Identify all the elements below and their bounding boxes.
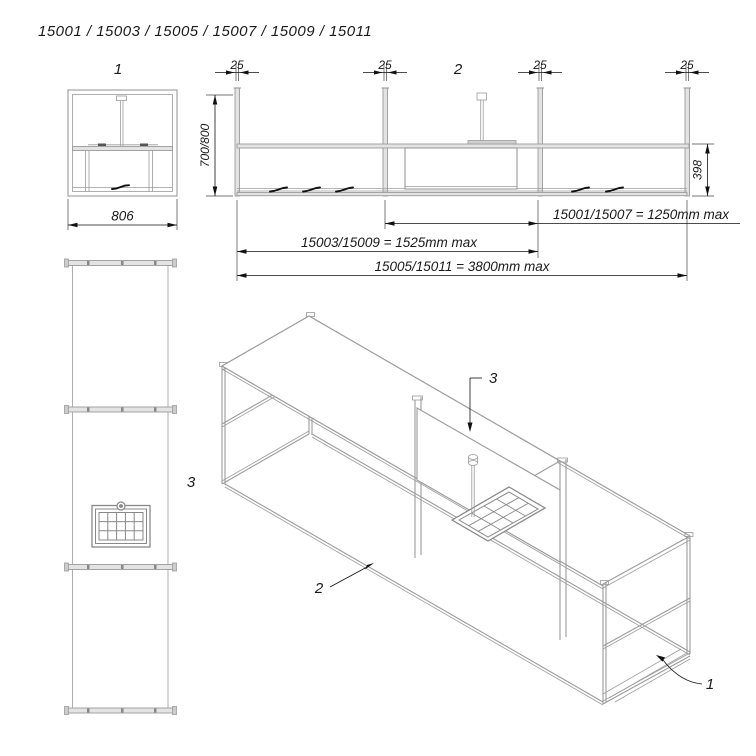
drawing-title: 15001 / 15003 / 15005 / 15007 / 15009 / … — [38, 23, 372, 40]
elevation-bottom-rail — [237, 193, 687, 196]
length-dim-1250-text: 15001/15007 = 1250mm max — [553, 207, 730, 222]
front-hook — [117, 96, 127, 101]
iso-leader-frame: 1 — [656, 655, 714, 693]
post-width-dim-3: 25 — [532, 58, 547, 72]
front-shelf — [73, 147, 173, 151]
shelf-bracket — [98, 144, 106, 147]
isometric-view: 3 2 1 — [220, 313, 715, 706]
length-dim-3800-text: 15005/15011 = 3800mm max — [375, 259, 551, 274]
iso-leader-rail: 2 — [314, 563, 374, 597]
iso-label-basket: 3 — [489, 370, 498, 387]
iso-label-frame: 1 — [706, 676, 714, 693]
plan-crossbars — [65, 259, 177, 715]
length-dim-1525: 15003/15009 = 1525mm max — [237, 235, 538, 254]
post-width-dim-2: 25 — [377, 58, 392, 72]
plan-grille — [92, 502, 150, 547]
elevation-view: 2 25 25 25 — [198, 58, 740, 281]
elevation-panel — [405, 148, 517, 189]
length-dim-1525-text: 15003/15009 = 1525mm max — [301, 235, 478, 250]
height-dim-group: 700/800 — [198, 95, 233, 196]
drawing-page: 15001 / 15003 / 15005 / 15007 / 15009 / … — [0, 0, 756, 756]
depth-dim: 398 — [691, 160, 705, 180]
iso-right-end-frame — [601, 533, 694, 705]
height-dim: 700/800 — [198, 123, 212, 167]
elevation-view-label: 2 — [453, 61, 463, 78]
technical-drawing: 15001 / 15003 / 15005 / 15007 / 15009 / … — [0, 0, 756, 756]
post-width-dim-1: 25 — [229, 58, 244, 72]
length-dim-3800: 15005/15011 = 3800mm max — [237, 259, 687, 278]
iso-label-rail: 2 — [314, 580, 324, 597]
front-view: 1 806 — [68, 61, 177, 230]
shelf-bracket — [140, 144, 148, 147]
elevation-rod — [468, 93, 516, 144]
front-outer-frame — [68, 90, 177, 196]
depth-dim-group: 398 — [691, 144, 715, 196]
plan-view: 3 — [65, 259, 196, 715]
front-width-dim: 806 — [111, 209, 134, 224]
elevation-top-rail — [237, 144, 689, 148]
front-inner-frame — [73, 95, 173, 192]
post-width-dim-4: 25 — [679, 58, 694, 72]
front-view-label: 1 — [114, 61, 122, 78]
plan-view-label: 3 — [187, 474, 196, 491]
